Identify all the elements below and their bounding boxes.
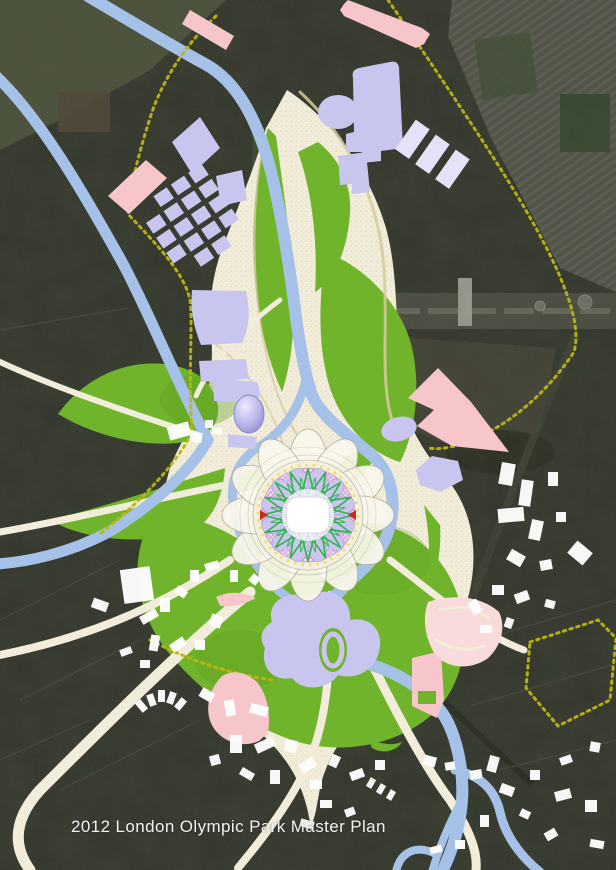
building-broadcast-centre xyxy=(346,62,403,163)
existing-building xyxy=(190,570,199,582)
existing-building xyxy=(444,761,455,771)
stadium-pitch-center xyxy=(287,497,330,533)
existing-building xyxy=(539,559,553,571)
existing-building xyxy=(310,780,322,789)
existing-building xyxy=(212,428,222,434)
existing-building xyxy=(480,625,492,633)
existing-building xyxy=(160,598,170,612)
existing-building xyxy=(205,420,213,428)
building-lavender-west-1 xyxy=(191,290,248,345)
existing-building xyxy=(480,815,489,827)
existing-building xyxy=(585,800,597,812)
existing-building xyxy=(589,741,601,753)
existing-building xyxy=(548,472,558,486)
existing-building xyxy=(120,566,154,604)
map-canvas: 2012 London Olympic Park Master Plan xyxy=(0,0,616,870)
existing-building xyxy=(140,660,150,668)
existing-building xyxy=(492,585,504,595)
existing-building xyxy=(375,760,385,770)
building-lavender-north-2 xyxy=(216,170,247,206)
existing-building xyxy=(455,840,465,849)
existing-building xyxy=(230,735,242,753)
venue-green-court xyxy=(418,691,436,704)
existing-building xyxy=(284,739,298,753)
building-round-north xyxy=(318,95,358,129)
existing-building xyxy=(530,770,540,780)
existing-building xyxy=(189,431,203,443)
existing-building xyxy=(195,640,205,650)
venue-pink-southeast xyxy=(412,651,444,718)
existing-building xyxy=(270,770,280,784)
existing-building xyxy=(158,690,165,702)
building-lavender-west-2 xyxy=(199,359,249,382)
caption-title: 2012 London Olympic Park Master Plan xyxy=(71,817,386,837)
velodrome-dome xyxy=(234,395,264,433)
existing-building xyxy=(230,570,238,582)
master-plan-map xyxy=(0,0,616,870)
existing-building xyxy=(497,507,524,523)
existing-building xyxy=(320,800,332,808)
existing-building xyxy=(556,512,566,522)
